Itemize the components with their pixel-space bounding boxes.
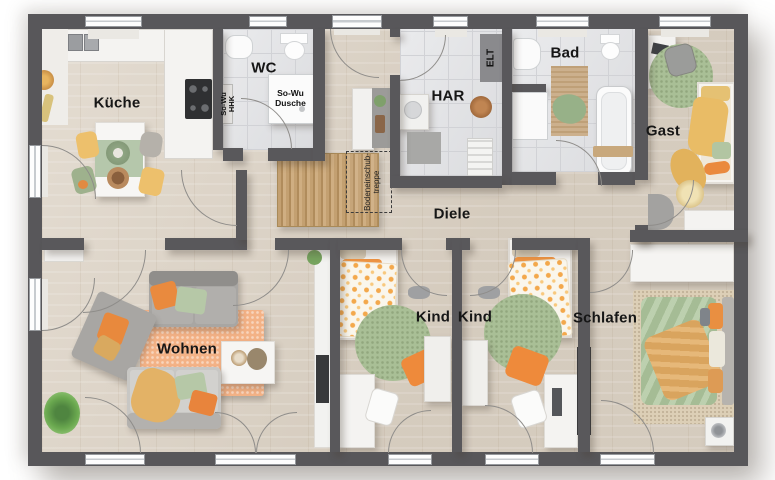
room-label-bad: Bad [551, 45, 580, 62]
sill-gast [661, 29, 709, 37]
annotation-shower-wc: So-Wu Dusche [268, 89, 313, 108]
har-storage-box [407, 132, 441, 164]
table-bowl [107, 167, 129, 189]
window-bad-top [536, 16, 589, 27]
annotation-shower-wc-line2: Dusche [268, 99, 313, 109]
schlafen-pillow-orange-1 [708, 303, 723, 329]
annotation-hhk: So-Wu HHK [220, 92, 236, 116]
room-label-har: HAR [431, 88, 464, 105]
kitchen-sink [68, 34, 83, 51]
wall-kind1-top [338, 238, 402, 250]
wall-kind2-schlafen [578, 238, 590, 452]
wall-bad-bottom-right [598, 172, 635, 185]
coffee-table-plant [247, 348, 267, 370]
wall-har-bad [502, 29, 512, 185]
table-plant [106, 141, 130, 165]
entry-plant [374, 95, 386, 107]
window-kind2-bottom [485, 454, 539, 465]
floorplan-canvas: Küche WC HAR Bad Gast Diele Wohnen Kind … [0, 0, 775, 480]
pillow-green-top [174, 286, 207, 315]
wall-exterior-left [28, 14, 42, 466]
wc-toilet-bowl [284, 41, 305, 60]
window-kind1-bottom [388, 454, 432, 465]
wall-bad-bottom-left [512, 172, 556, 185]
schlafen-pillow-orange-2 [708, 369, 723, 393]
floor-plant [44, 392, 80, 434]
bad-sink [513, 38, 541, 70]
sill-bad [538, 29, 587, 37]
wall-wohnen-kind1 [330, 238, 340, 452]
wall-wc-entry [313, 29, 325, 161]
window-kueche-left [29, 145, 41, 198]
entry-decor [375, 115, 385, 133]
wall-bad-gast [635, 29, 648, 180]
kind2-monitor [552, 388, 562, 416]
gast-pillow-green [712, 142, 731, 159]
wall-wc-bottom-right [268, 148, 313, 161]
wall-kind1-kind2 [452, 238, 462, 452]
sill-kueche [88, 29, 139, 39]
bathtub-inner [601, 92, 627, 170]
bad-toilet-bowl [601, 42, 620, 60]
annotation-attic-stairs-line1: Bodeneinschub- [363, 153, 372, 211]
terrace-double-door-wohnen [215, 454, 296, 465]
room-label-kueche: Küche [94, 95, 141, 112]
room-label-kind2: Kind [458, 309, 492, 326]
room-label-wohnen: Wohnen [157, 341, 217, 358]
room-label-wc: WC [251, 60, 276, 77]
bad-shower-tray [512, 92, 548, 140]
schlafen-speaker-cone [711, 423, 726, 438]
wall-entry-har [390, 75, 400, 176]
room-label-diele: Diele [434, 206, 471, 223]
chair-yellow-1 [75, 130, 100, 159]
window-wohnen-left [29, 278, 41, 331]
coffee-table-tray [231, 350, 247, 366]
room-label-schlafen: Schlafen [573, 310, 637, 327]
room-label-kind1: Kind [416, 309, 450, 326]
tv-screen [316, 355, 329, 403]
kind2-wardrobe [462, 340, 488, 406]
window-har-top [433, 16, 468, 27]
gast-dresser [684, 210, 737, 232]
window-schlafen-bottom [600, 454, 655, 465]
window-wc-top [249, 16, 287, 27]
room-label-gast: Gast [646, 123, 680, 140]
window-gast-top [659, 16, 711, 27]
annotation-attic-stairs: Bodeneinschub- treppe [363, 153, 381, 211]
wall-wc-bottom-left [223, 148, 243, 161]
stove-cooktop [185, 79, 212, 119]
annotation-hhk-line2: HHK [228, 92, 236, 116]
wall-kueche-wc [213, 29, 223, 150]
wall-kind2-top-stub [462, 238, 470, 250]
wall-kueche-diele-stub [236, 170, 247, 240]
annotation-elt: ELT [486, 49, 497, 67]
kind1-wardrobe [424, 336, 451, 402]
wall-schlafen-top [630, 230, 748, 242]
washing-machine-door [404, 101, 422, 119]
front-door [332, 15, 382, 28]
schlafen-wardrobe [630, 244, 734, 282]
bad-shower-wall-stub [512, 84, 546, 92]
wall-kind2-top [512, 238, 578, 250]
window-kueche-top [85, 16, 142, 27]
terrace-door-wohnen [85, 454, 145, 465]
bathtub-caddy [593, 146, 633, 157]
schlafen-pillow-gray [700, 308, 710, 326]
wall-entry-har-stub [390, 29, 400, 37]
wc-sink [225, 35, 253, 59]
entry-console-white [352, 88, 374, 150]
annotation-attic-stairs-line2: treppe [372, 153, 381, 211]
lowboard-plant [307, 250, 322, 265]
drying-rack [467, 138, 493, 178]
wall-wohnen-top-b [165, 238, 247, 250]
wall-wohnen-top-c [275, 238, 338, 250]
wall-wohnen-top-a [42, 238, 84, 250]
wall-har-bottom [390, 176, 502, 188]
schlafen-pillow-white [709, 331, 725, 367]
laundry-basket [470, 96, 492, 118]
